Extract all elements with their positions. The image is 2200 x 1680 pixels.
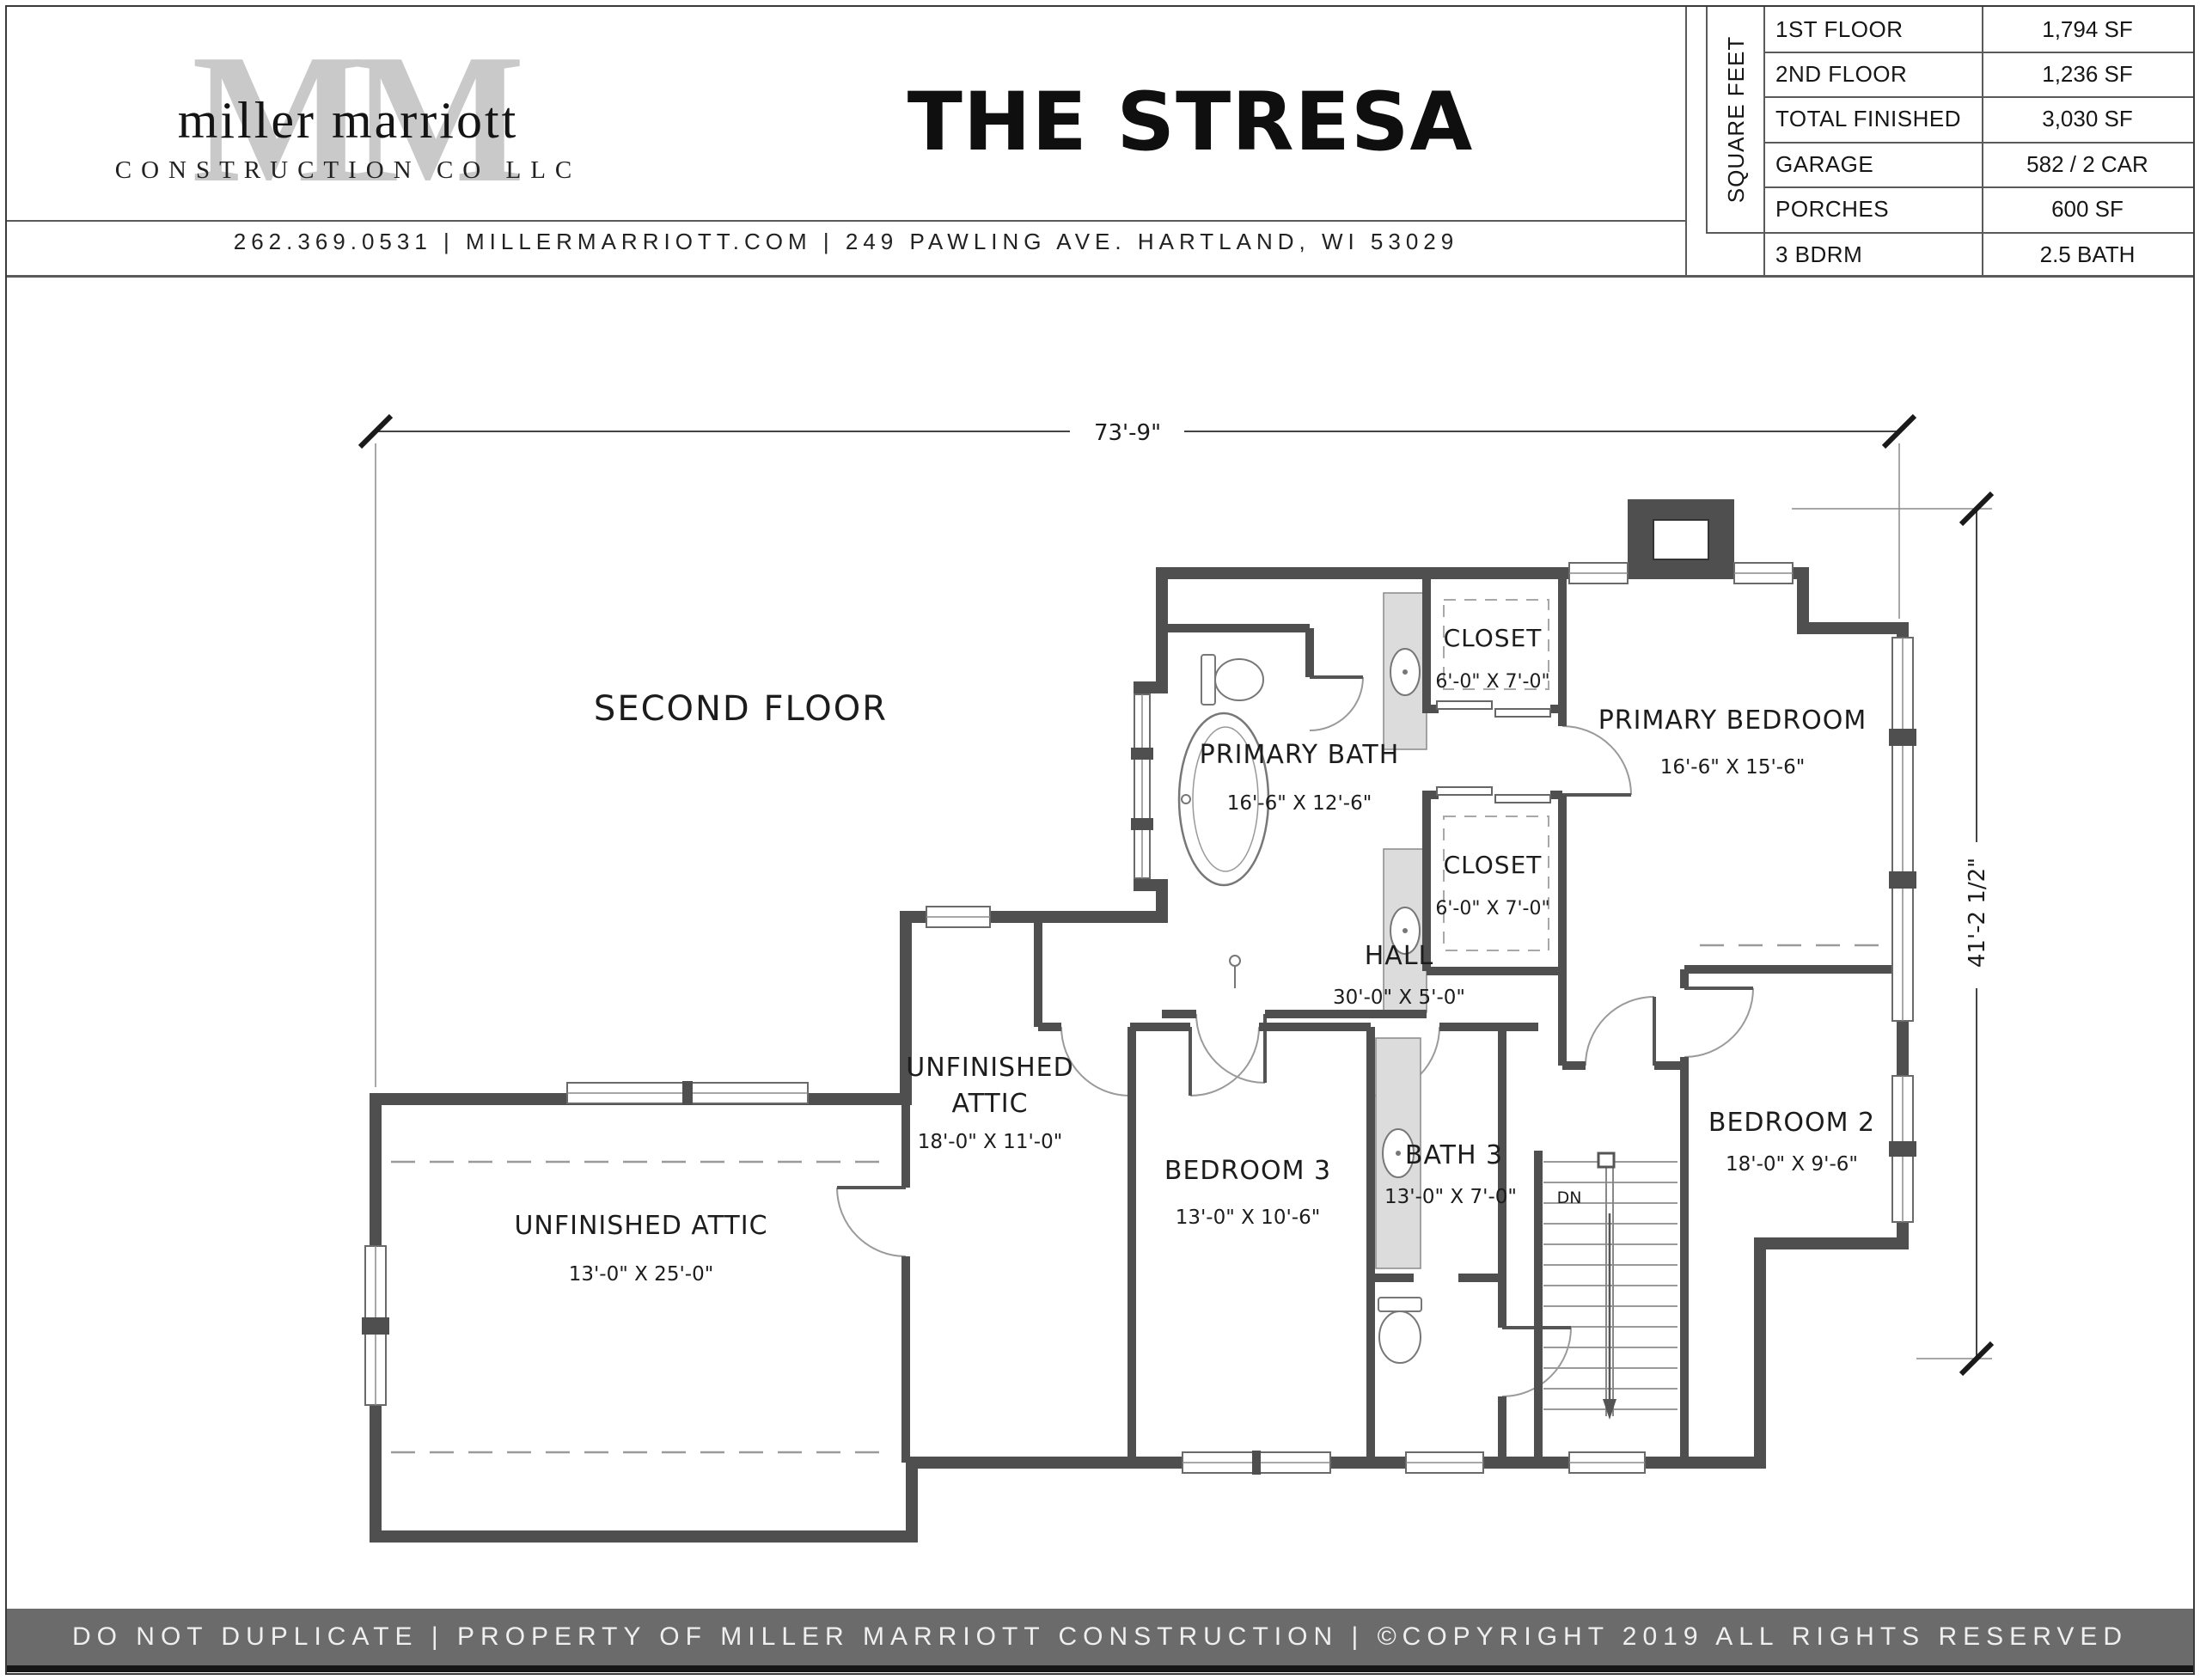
- copyright-text: DO NOT DUPLICATE | PROPERTY OF MILLER MA…: [72, 1622, 2128, 1652]
- room-dims-hall: 30'-0" X 5'-0": [1333, 987, 1465, 1009]
- room-label-bedroom-3: BEDROOM 3: [1164, 1156, 1331, 1186]
- toilet-bowl: [1379, 1311, 1421, 1363]
- room-dims-closet-a: 6'-0" X 7'-0": [1435, 671, 1549, 693]
- floor-plan-drawing: DN: [0, 0, 2200, 1680]
- room-dims-closet-b: 6'-0" X 7'-0": [1435, 898, 1549, 919]
- toilet-tank: [1201, 655, 1215, 705]
- dashed-attic-lines: [391, 945, 1891, 1452]
- room-dims-primary-bedroom: 16'-6" X 15'-6": [1660, 756, 1806, 779]
- plan-sheet: MM miller marriott CONSTRUCTION CO LLC T…: [0, 0, 2200, 1680]
- room-label-attic-large: UNFINISHED ATTIC: [514, 1211, 767, 1241]
- staircase: DN: [1543, 1153, 1677, 1420]
- room-label-closet-a: CLOSET: [1444, 624, 1543, 652]
- room-dims-bath-3: 13'-0" X 7'-0": [1384, 1186, 1517, 1208]
- bypass-closet-doors: [1437, 701, 1550, 803]
- room-dims-bedroom-2: 18'-0" X 9'-6": [1726, 1153, 1858, 1176]
- stair-newel-post: [1598, 1153, 1614, 1167]
- toilet-bowl: [1215, 659, 1263, 700]
- stairs-dn-label: DN: [1557, 1188, 1582, 1207]
- chimney: [1628, 499, 1734, 578]
- room-label-bath-3: BATH 3: [1405, 1140, 1503, 1170]
- room-label-bedroom-2: BEDROOM 2: [1708, 1108, 1875, 1138]
- footer-bottom-rule: [7, 1665, 2193, 1672]
- room-dims-attic-small: 18'-0" X 11'-0": [918, 1131, 1063, 1153]
- room-dims-bedroom-3: 13'-0" X 10'-6": [1176, 1207, 1321, 1229]
- room-label-hall: HALL: [1365, 941, 1434, 971]
- bath-fixtures: [1179, 593, 1427, 1363]
- copyright-bar: DO NOT DUPLICATE | PROPERTY OF MILLER MA…: [7, 1609, 2193, 1665]
- floor-fixture: [1230, 956, 1240, 966]
- room-label-attic-small-line1: UNFINISHED: [906, 1053, 1073, 1083]
- door-swings: [837, 677, 1753, 1396]
- room-label-closet-b: CLOSET: [1444, 851, 1543, 879]
- room-dims-attic-large: 13'-0" X 25'-0": [569, 1263, 714, 1286]
- overall-depth-dimension: 41'-2 1/2": [1965, 858, 1990, 968]
- room-label-primary-bedroom: PRIMARY BEDROOM: [1598, 706, 1867, 736]
- room-label-primary-bath: PRIMARY BATH: [1200, 740, 1400, 770]
- room-dims-primary-bath: 16'-6" X 12'-6": [1227, 792, 1372, 815]
- room-label-attic-small-line2: ATTIC: [951, 1089, 1028, 1119]
- room-labels: SECOND FLOOR PRIMARY BATH 16'-6" X 12'-6…: [514, 624, 1875, 1286]
- overall-width-dimension: 73'-9": [1094, 420, 1161, 446]
- toilet-tank: [1378, 1298, 1421, 1311]
- floor-label: SECOND FLOOR: [594, 689, 888, 729]
